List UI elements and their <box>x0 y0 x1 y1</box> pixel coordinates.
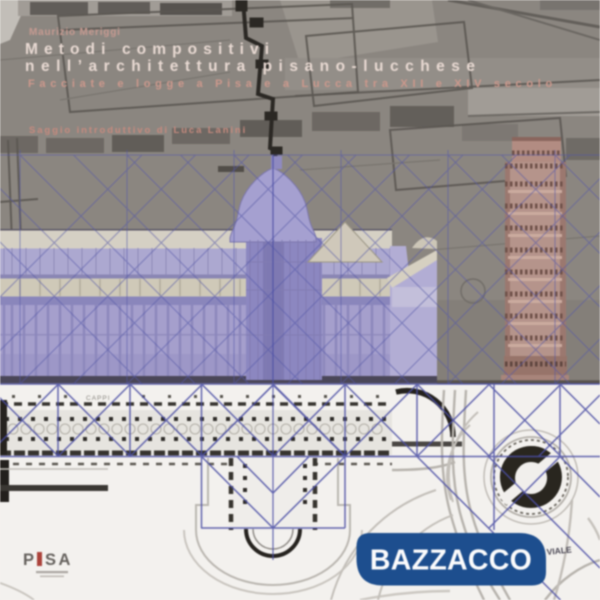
svg-text:Saggio introduttivo di Luca La: Saggio introduttivo di Luca Lanini <box>29 125 247 136</box>
svg-text:BAZZACCO: BAZZACCO <box>370 545 532 577</box>
svg-text:P: P <box>23 551 37 569</box>
svg-text:nell’architettura pisano-lucch: nell’architettura pisano-lucchese <box>25 58 482 75</box>
svg-text:CAPPI: CAPPI <box>86 395 111 402</box>
svg-text:Facciate e logge a Pisa e a Lu: Facciate e logge a Pisa e a Lucca tra XI… <box>28 78 557 90</box>
svg-text:Maurizio Meriggi: Maurizio Meriggi <box>29 27 121 38</box>
svg-text:SA: SA <box>45 551 73 569</box>
svg-text:Metodi compositivi: Metodi compositivi <box>25 41 275 58</box>
